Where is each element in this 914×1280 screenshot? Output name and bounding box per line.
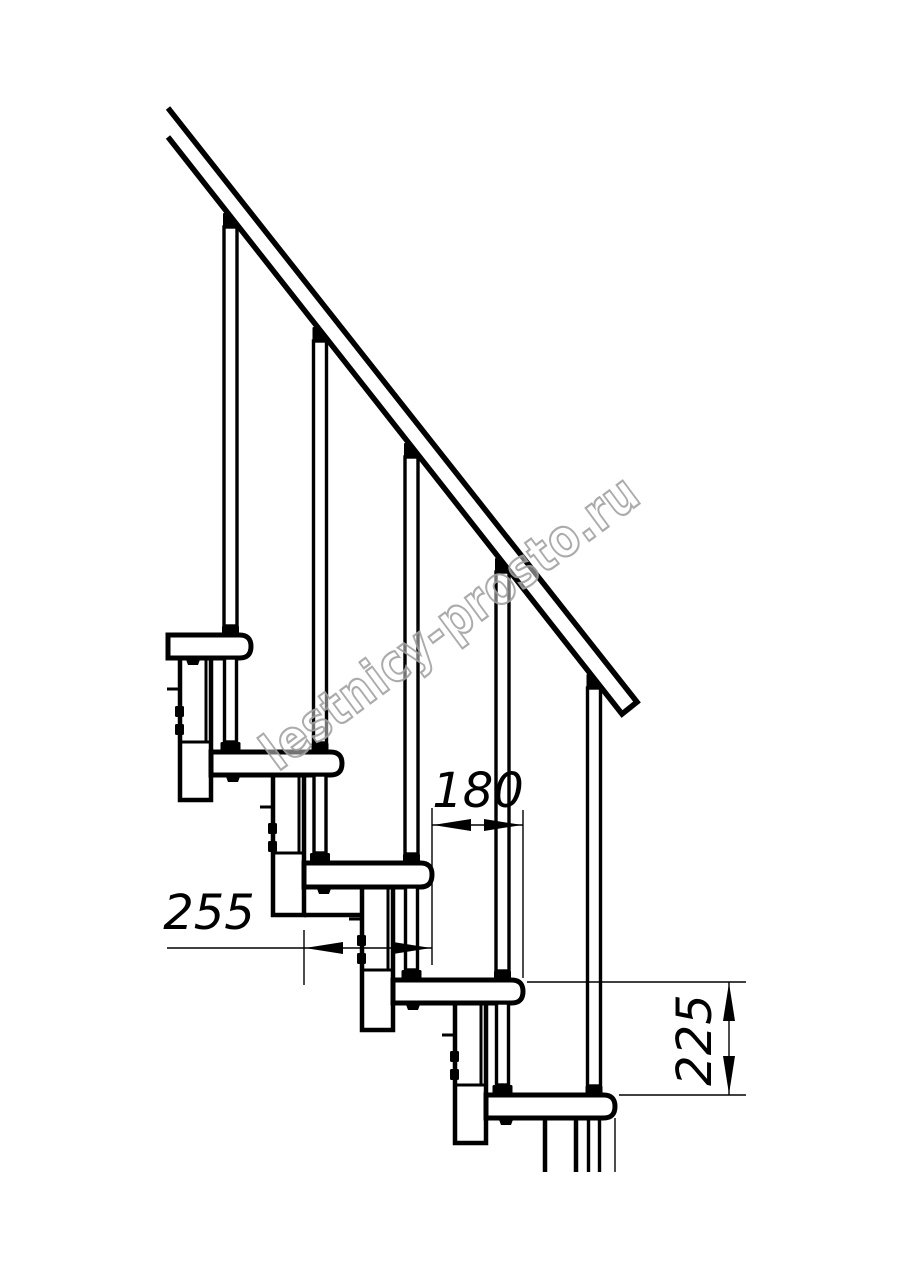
support-module-4 xyxy=(442,1003,486,1143)
baluster-2 xyxy=(310,327,330,863)
support-module-1 xyxy=(167,658,211,800)
support-module-2 xyxy=(260,775,362,915)
tread-5 xyxy=(486,1095,615,1118)
tread-4-clamp xyxy=(405,1002,421,1010)
tread-3-clamp xyxy=(316,886,332,894)
tread-3 xyxy=(304,863,432,887)
tread-2-clamp xyxy=(225,774,241,782)
support-module-5 xyxy=(545,1118,576,1172)
dimension-riser-height: 225 xyxy=(527,982,746,1172)
staircase-drawing-page: 180 255 225 lestnicy-prosto.ru xyxy=(0,0,914,1280)
support-module-3 xyxy=(349,887,393,1030)
staircase-technical-drawing: 180 255 225 lestnicy-prosto.ru xyxy=(0,0,914,1280)
dim-label-225: 225 xyxy=(667,994,723,1086)
dim-label-180: 180 xyxy=(432,763,524,819)
baluster-1 xyxy=(221,213,241,752)
baluster-3 xyxy=(402,443,422,980)
tread-5-clamp xyxy=(498,1117,514,1125)
dim-label-255: 255 xyxy=(163,885,255,941)
tread-4 xyxy=(393,980,523,1003)
tread-1 xyxy=(168,635,251,658)
